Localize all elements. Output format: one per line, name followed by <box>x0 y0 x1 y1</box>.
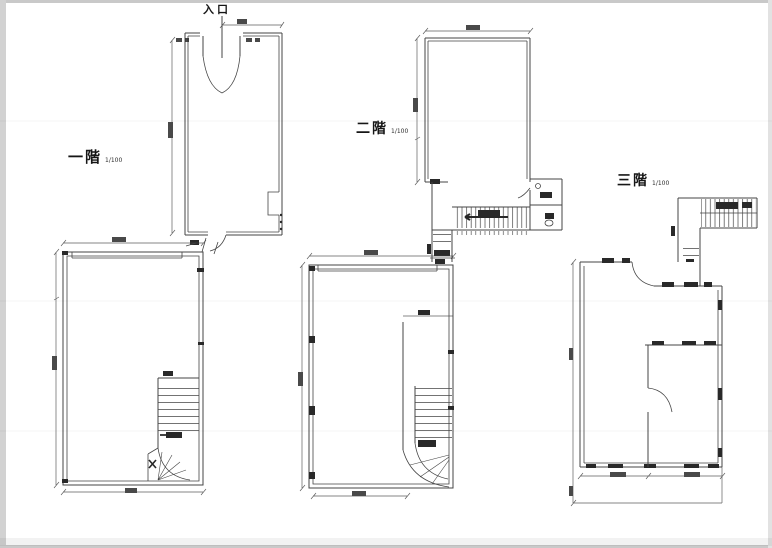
floor1-scale-note: 1/100 <box>105 157 122 164</box>
floor3-stair-wing <box>678 198 757 228</box>
floor3-partition <box>645 341 722 467</box>
entrance-label: 入口 <box>203 4 231 15</box>
floor1-label: 一階1/100 <box>68 150 122 165</box>
floor2-rear-dimensions <box>298 250 456 499</box>
door-arc <box>648 388 672 412</box>
floor1-rear-dimensions <box>52 237 206 495</box>
stair-direction-annotation <box>418 440 436 447</box>
stair-mark <box>149 460 156 468</box>
floor2-stair-hall <box>432 179 562 235</box>
floor3-room-walls <box>580 258 722 468</box>
floor2-staircase <box>403 310 453 487</box>
floor2-label-text: 二階 <box>356 121 388 137</box>
floor1-upper-room-walls <box>185 33 282 235</box>
floor3-label-text: 三階 <box>617 173 649 189</box>
stair-direction-annotation <box>478 210 500 216</box>
floor1-rear-room-walls <box>62 251 204 485</box>
floor1-label-text: 一階 <box>68 148 102 166</box>
scan-artifacts <box>0 0 772 548</box>
floor2-upper-room-walls <box>425 38 530 184</box>
floor3-scale-note: 1/100 <box>652 180 669 187</box>
floorplan-drawing <box>0 0 772 548</box>
floor2-stair-stub <box>427 230 455 262</box>
floor3-dimensions <box>569 259 725 506</box>
floor1-passage <box>186 235 226 254</box>
floor1-plan <box>52 16 284 495</box>
wc-room-annotation <box>540 192 552 198</box>
toilet-fixture <box>545 213 554 219</box>
floor3-label: 三階1/100 <box>617 174 669 188</box>
floor3-plan <box>569 198 757 506</box>
floor2-label: 二階1/100 <box>356 122 408 136</box>
door-arc <box>632 262 654 286</box>
stair-direction-annotation <box>716 202 738 209</box>
floor2-rear-room-walls <box>309 259 454 488</box>
floor1-left-dimension <box>168 37 175 236</box>
floor3-corridor <box>671 198 700 286</box>
floor1-staircase <box>148 371 199 481</box>
floor1-top-dimension <box>176 19 284 42</box>
washbasin-fixture <box>536 184 541 189</box>
entrance-door <box>203 16 240 93</box>
floorplan-sheet: 入口 一階1/100 二階1/100 三階1/100 <box>0 0 772 548</box>
floor2-scale-note: 1/100 <box>391 128 408 135</box>
stair-direction-annotation <box>166 432 182 438</box>
floor2-upper-dimensions <box>413 25 533 185</box>
floor2-plan <box>298 25 562 499</box>
